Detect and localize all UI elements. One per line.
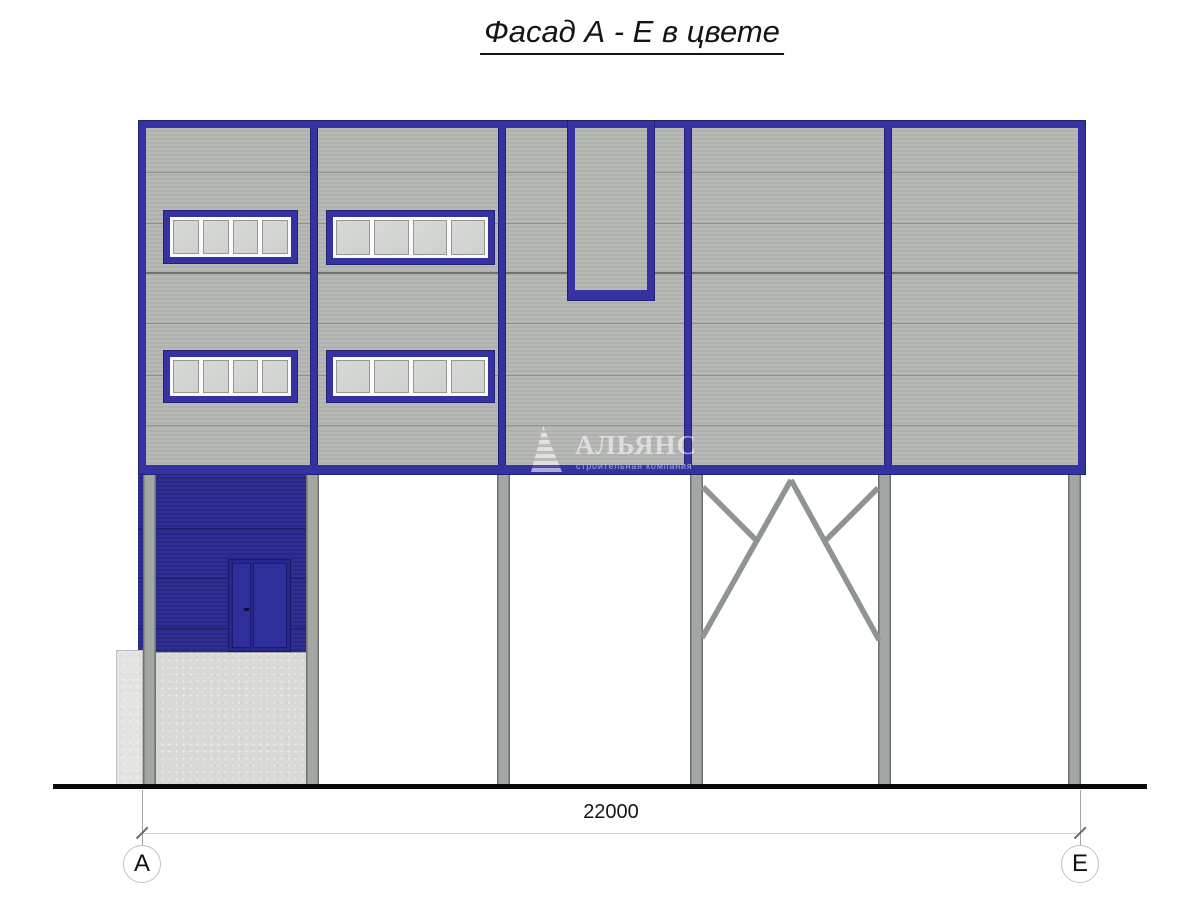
window-pane <box>451 220 485 255</box>
annex-wall <box>138 475 307 652</box>
window-pane <box>233 220 259 254</box>
entrance-door <box>228 559 291 652</box>
ground-line <box>53 784 1147 789</box>
facade-mullion <box>684 128 692 465</box>
window-pane <box>203 360 229 393</box>
facade-mullion <box>310 128 318 465</box>
door-handle <box>244 608 249 611</box>
window-pane <box>413 220 447 255</box>
window-frame <box>170 357 291 396</box>
building-facade <box>138 120 1086 475</box>
extension-line-a <box>142 790 143 847</box>
ribbon-window-lower-right <box>326 350 495 403</box>
panel-joint-line <box>146 323 1078 324</box>
support-column-e <box>1068 475 1081 785</box>
extension-line-e <box>1080 790 1081 847</box>
ribbon-window-upper-left <box>163 210 298 264</box>
company-watermark-name: АЛЬЯНС <box>575 430 697 461</box>
window-pane <box>336 220 370 255</box>
window-pane <box>203 220 229 254</box>
dimension-line <box>142 833 1081 834</box>
window-frame <box>333 357 488 396</box>
window-frame <box>170 217 291 257</box>
panel-joint-line <box>146 425 1078 426</box>
window-frame <box>333 217 488 258</box>
cross-bracing <box>689 476 891 646</box>
window-pane <box>451 360 485 393</box>
support-column-a <box>143 475 156 785</box>
window-pane <box>262 220 288 254</box>
annex-panel-line <box>138 528 306 529</box>
facade-mullion <box>884 128 892 465</box>
grid-marker-e: Е <box>1061 845 1099 883</box>
support-column-3 <box>497 475 510 785</box>
company-watermark-subtitle: строительная компания <box>576 461 692 471</box>
dimension-value: 22000 <box>583 801 639 824</box>
door-leaf-right <box>253 563 287 648</box>
ribbon-window-upper-right <box>326 210 495 265</box>
window-pane <box>374 360 408 393</box>
window-pane <box>173 220 199 254</box>
drawing-title: Фасад А - Е в цвете <box>480 14 784 55</box>
window-pane <box>173 360 199 393</box>
window-pane <box>262 360 288 393</box>
roof-recess <box>567 121 655 301</box>
window-pane <box>233 360 259 393</box>
door-leaf-left <box>232 563 251 648</box>
concrete-block-main <box>155 652 308 785</box>
drawing-canvas: Фасад А - Е в цвете <box>0 0 1200 900</box>
grid-marker-a: А <box>123 845 161 883</box>
concrete-block-small <box>116 650 143 785</box>
window-pane <box>374 220 408 255</box>
ribbon-window-lower-left <box>163 350 298 403</box>
window-pane <box>413 360 447 393</box>
support-column-2 <box>306 475 319 785</box>
roof-recess-cladding <box>575 128 647 290</box>
window-pane <box>336 360 370 393</box>
facade-mullion <box>498 128 506 465</box>
